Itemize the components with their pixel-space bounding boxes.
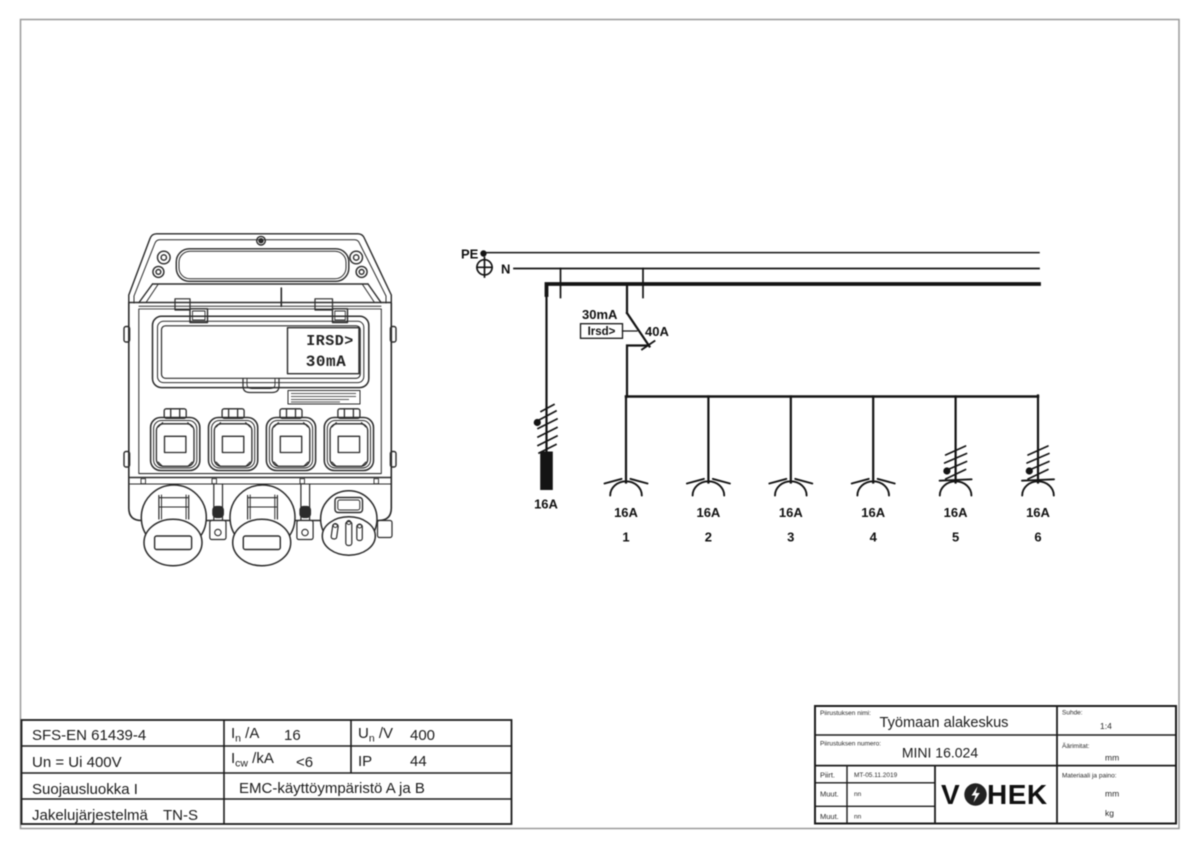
svg-text:TN-S: TN-S [163,807,198,824]
svg-text:16A: 16A [534,497,558,512]
svg-text:MINI 16.024: MINI 16.024 [902,745,978,761]
svg-text:nn: nn [854,814,862,821]
svg-text:Materiaali ja paino:: Materiaali ja paino: [1062,773,1117,780]
svg-text:IRSD>: IRSD> [306,333,354,350]
svg-text:3: 3 [787,530,794,545]
svg-text:Muut.: Muut. [820,812,839,821]
svg-text:16A: 16A [1026,505,1050,520]
svg-text:Un = Ui 400V: Un = Ui 400V [32,754,122,771]
svg-text:Jakelujärjestelmä: Jakelujärjestelmä [32,807,149,824]
svg-text:kg: kg [1105,808,1114,818]
svg-text:Äärimitat:: Äärimitat: [1062,742,1090,750]
svg-text:Suhde:: Suhde: [1062,710,1083,717]
svg-text:mm: mm [1105,753,1119,763]
svg-text:16A: 16A [696,505,720,520]
svg-text:Piirustuksen nimi:: Piirustuksen nimi: [820,710,871,717]
svg-text:16: 16 [284,727,301,744]
svg-text:PE: PE [461,247,479,262]
svg-text:16A: 16A [944,505,968,520]
svg-text:HEK: HEK [987,779,1048,810]
svg-text:EMC-käyttöympäristö A ja B: EMC-käyttöympäristö A ja B [239,780,425,797]
svg-text:16A: 16A [861,505,885,520]
svg-text:2: 2 [705,530,712,545]
svg-text:1:4: 1:4 [1100,721,1112,731]
svg-text:SFS-EN 61439-4: SFS-EN 61439-4 [32,727,146,744]
svg-text:<6: <6 [296,754,313,771]
svg-text:Suojausluokka I: Suojausluokka I [32,781,138,798]
svg-text:Piirt.: Piirt. [820,771,835,780]
svg-text:5: 5 [952,530,959,545]
svg-text:16A: 16A [614,505,638,520]
svg-text:Irsd>: Irsd> [588,326,616,338]
svg-text:Työmaan alakeskus: Työmaan alakeskus [880,715,1009,731]
svg-text:nn: nn [854,791,862,798]
svg-text:1: 1 [622,530,629,545]
svg-text:4: 4 [870,530,878,545]
svg-text:Un /V: Un /V [358,725,393,745]
svg-text:N: N [501,262,510,277]
svg-text:400: 400 [410,727,435,744]
svg-text:V: V [941,779,960,810]
svg-text:IP: IP [358,753,372,770]
svg-text:16A: 16A [779,505,803,520]
svg-text:44: 44 [410,753,427,770]
svg-text:40A: 40A [645,324,669,339]
svg-text:Muut.: Muut. [820,790,839,799]
svg-text:30mA: 30mA [306,353,346,371]
svg-text:MT-05.11.2019: MT-05.11.2019 [854,772,898,779]
svg-text:Piirustuksen numero:: Piirustuksen numero: [820,741,881,748]
svg-text:30mA: 30mA [582,307,618,322]
svg-text:mm: mm [1105,789,1119,799]
svg-text:6: 6 [1034,530,1041,545]
